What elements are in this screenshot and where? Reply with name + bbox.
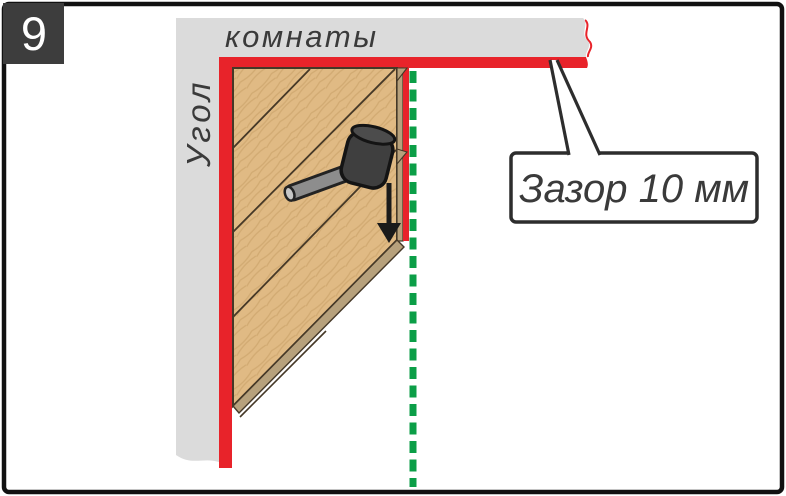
laminate-panel-area [233,68,409,417]
laminate-face [233,68,397,406]
gap-callout: Зазор 10 мм [511,60,757,222]
gap-strip-left [219,57,232,468]
callout-label: Зазор 10 мм [519,167,749,211]
step-badge: 9 [3,3,64,64]
laminate-installation-step-diagram: Зазор 10 мм комнаты Угол 9 [0,0,786,496]
step-number: 9 [21,7,47,60]
gap-strip-top [219,57,588,68]
wall-label-vertical: Угол [180,78,217,168]
wall-label-horizontal: комнаты [225,19,379,54]
